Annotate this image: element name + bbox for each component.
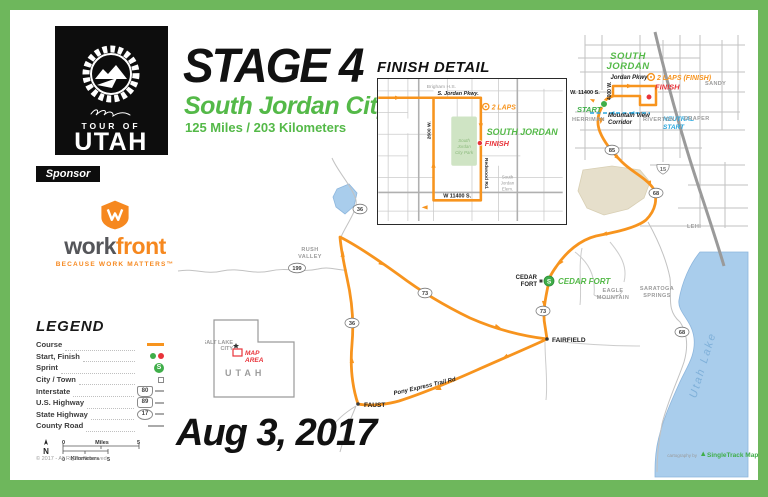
sprint-symbol: S <box>154 363 164 373</box>
arrow-bird-icon <box>97 78 117 88</box>
utah-state-inset: SALT LAKE CITY MAP AREA UTAH <box>205 316 303 402</box>
label-riverton: RIVERTON <box>643 117 675 123</box>
detail-label-laps: 2 LAPS <box>491 105 517 112</box>
legend-label: Interstate <box>36 387 70 396</box>
detail-label-west-street: 2600 W. <box>427 121 433 140</box>
shield-sr68-north: 68 <box>649 188 663 198</box>
workfront-logo: workfront BECAUSE WORK MATTERS™ <box>48 200 182 268</box>
svg-text:36: 36 <box>349 321 355 327</box>
credit-prefix: cartography by <box>667 453 698 458</box>
legend-label: City / Town <box>36 375 76 384</box>
stage-distance: 125 Miles / 203 Kilometers <box>185 120 346 135</box>
detail-label-park-1: South <box>458 138 470 143</box>
label-lehi: LEHI <box>687 224 701 230</box>
course-line-symbol <box>147 343 164 346</box>
finish-detail-map: Brigham H.S. S. Jordan Pkwy. 2 LAPS SOUT… <box>378 79 563 221</box>
svg-text:5: 5 <box>107 457 110 463</box>
shield-sr73-cedar: 73 <box>536 306 550 316</box>
tour-of-utah-logo-art: TOUR OF UTAH <box>55 26 168 155</box>
north-label: N <box>43 447 49 456</box>
detail-label-elem-3: Elem. <box>502 186 513 191</box>
label-4000w: 4000 W. <box>607 81 613 100</box>
label-finish: FINISH <box>655 83 680 92</box>
state-highway-shield-symbol: 17 <box>137 409 153 420</box>
legend-label: Course <box>36 340 62 349</box>
legend-label: Start, Finish <box>36 352 80 361</box>
county-road-symbol <box>148 425 164 427</box>
label-saratoga-2: SPRINGS <box>643 293 671 299</box>
workfront-tagline: BECAUSE WORK MATTERS™ <box>48 261 182 268</box>
city-town-symbol <box>158 377 164 383</box>
legend-row-county-road: County Road <box>36 420 164 432</box>
svg-text:199: 199 <box>292 266 301 272</box>
label-jordan-pkwy: Jordan Pkwy <box>610 75 648 81</box>
detail-label-finish: FINISH <box>485 139 510 148</box>
fairfield-town-marker <box>545 337 549 341</box>
shield-sr36-course: 36 <box>345 318 359 328</box>
shield-sr68-lake: 68 <box>675 327 689 337</box>
legend-title: LEGEND <box>36 318 164 335</box>
svg-text:73: 73 <box>422 291 428 297</box>
mountains-icon <box>95 65 127 79</box>
shield-i15: 15 <box>657 165 669 175</box>
svg-text:85: 85 <box>609 148 615 154</box>
shield-sr199: 199 <box>289 263 306 273</box>
logo-utah: UTAH <box>74 128 148 155</box>
sprint-letter: S <box>547 279 552 286</box>
north-arrow: N <box>43 439 49 456</box>
detail-label-south-street: W 11400 S. <box>443 193 471 199</box>
map-credit: cartography by SingleTrack Maps <box>667 452 762 460</box>
legend-row-city: City / Town <box>36 374 164 386</box>
inset-map-area-1: MAP <box>245 350 260 357</box>
us-highway-shield-symbol: 89 <box>137 397 153 408</box>
detail-label-parkway: S. Jordan Pkwy. <box>437 91 479 97</box>
legend-row-start-finish: Start, Finish <box>36 351 164 363</box>
legend-label: Sprint <box>36 363 58 372</box>
detail-label-elem-1: South <box>502 175 514 180</box>
workfront-wordmark: workfront <box>48 235 182 258</box>
label-faust: FAUST <box>364 402 385 409</box>
legend-row-sprint: Sprint S <box>36 362 164 374</box>
finish-detail-inset: Brigham H.S. S. Jordan Pkwy. 2 LAPS SOUT… <box>377 78 567 225</box>
finish-marker <box>646 94 652 100</box>
sprint-marker: S <box>544 276 554 286</box>
inset-slc-2: CITY <box>220 346 233 352</box>
detail-label-school: Brigham H.S. <box>427 84 456 90</box>
laps-icon <box>648 74 655 81</box>
svg-text:5: 5 <box>137 440 140 446</box>
label-w11400s: W. 11400 S. <box>570 90 600 96</box>
detail-finish-marker <box>477 141 482 146</box>
signature-script <box>91 110 130 116</box>
label-cedar-fort-sprint: CEDAR FORT <box>558 277 611 286</box>
workfront-lion-icon <box>99 200 131 230</box>
finish-dot-symbol <box>158 353 164 359</box>
svg-text:73: 73 <box>540 309 546 315</box>
sponsor-label: Sponsor <box>36 166 100 182</box>
miles-scale: 0 Miles 5 <box>62 440 140 449</box>
finish-detail-title: FINISH DETAIL <box>377 59 490 76</box>
legend-label: County Road <box>36 421 83 430</box>
stage-city: South Jordan City <box>184 92 391 121</box>
utah-state-outline: SALT LAKE CITY MAP AREA UTAH <box>205 316 303 402</box>
label-south-jordan-2: JORDAN <box>606 61 650 72</box>
legend-label: State Highway <box>36 410 88 419</box>
copyright-text: © 2017 - All Rights Reserved <box>36 456 107 462</box>
legend-label: U.S. Highway <box>36 398 84 407</box>
label-pony-express: Pony Express Trail Rd <box>393 377 457 397</box>
inset-utah-label: UTAH <box>225 368 265 378</box>
label-sandy: SANDY <box>705 81 726 87</box>
detail-laps-icon <box>483 103 489 109</box>
label-fairfield: FAIRFIELD <box>552 337 586 344</box>
legend-row-course: Course <box>36 339 164 351</box>
detail-label-park-2: Jordan <box>456 144 471 149</box>
svg-text:15: 15 <box>660 167 666 173</box>
tour-of-utah-logo: TOUR OF UTAH <box>55 26 168 155</box>
detail-label-redwood: Redwood Rd. <box>483 158 489 190</box>
start-marker <box>601 101 608 108</box>
workfront-word2: front <box>116 233 166 259</box>
label-eagle-mtn-2: MOUNTAIN <box>597 295 629 301</box>
credit-name: SingleTrack Maps <box>707 452 762 459</box>
faust-town-marker <box>356 402 360 406</box>
gear-icon <box>86 49 136 99</box>
cedar-fort-town-marker <box>540 280 543 283</box>
interstate-15-road <box>655 32 724 266</box>
label-rush-valley-1: RUSH <box>301 247 318 253</box>
start-dot-symbol <box>150 353 156 359</box>
workfront-word1: work <box>64 233 116 259</box>
legend: LEGEND Course Start, Finish Sprint S Cit… <box>36 318 164 471</box>
shield-sr73-pass: 73 <box>418 288 432 298</box>
label-cedar-fort-town-1: CEDAR <box>516 275 538 281</box>
label-saratoga-1: SARATOGA <box>640 286 674 292</box>
legend-row-us-highway: U.S. Highway 89 <box>36 397 164 409</box>
legend-row-state-highway: State Highway 17 <box>36 409 164 421</box>
svg-text:Miles: Miles <box>95 440 109 446</box>
label-start: START <box>577 105 603 114</box>
interstate-shield-symbol: 80 <box>137 386 153 397</box>
detail-label-park-3: City Park <box>455 150 474 155</box>
label-laps-finish: 2 LAPS (FINISH) <box>656 75 712 82</box>
label-draper: DRAPER <box>684 116 710 122</box>
camp-williams-area <box>578 166 650 215</box>
stage-date: Aug 3, 2017 <box>176 412 376 455</box>
label-cedar-fort-town-2: FORT <box>521 282 538 288</box>
shield-sr36-north: 36 <box>353 204 367 214</box>
svg-text:0: 0 <box>62 440 65 446</box>
shield-sr85: 85 <box>605 145 619 155</box>
label-mvc-2: Corridor <box>608 120 633 126</box>
label-herriman: HERRIMAN <box>572 117 605 123</box>
label-neutral-2: START <box>663 124 685 131</box>
legend-row-interstate: Interstate 80 <box>36 385 164 397</box>
svg-text:36: 36 <box>357 207 363 213</box>
label-rush-valley-2: VALLEY <box>298 254 322 260</box>
svg-text:68: 68 <box>653 191 659 197</box>
inset-map-area-2: AREA <box>244 357 264 364</box>
label-eagle-mtn-1: EAGLE <box>603 288 624 294</box>
stage-map-page: S 85 68 15 73 73 36 36 199 68 SOUTH JORD… <box>0 0 768 497</box>
stage-title: STAGE 4 <box>183 37 362 94</box>
detail-label-city: SOUTH JORDAN <box>487 127 558 137</box>
svg-text:68: 68 <box>679 330 685 336</box>
detail-label-elem-2: Jordan <box>501 181 515 186</box>
